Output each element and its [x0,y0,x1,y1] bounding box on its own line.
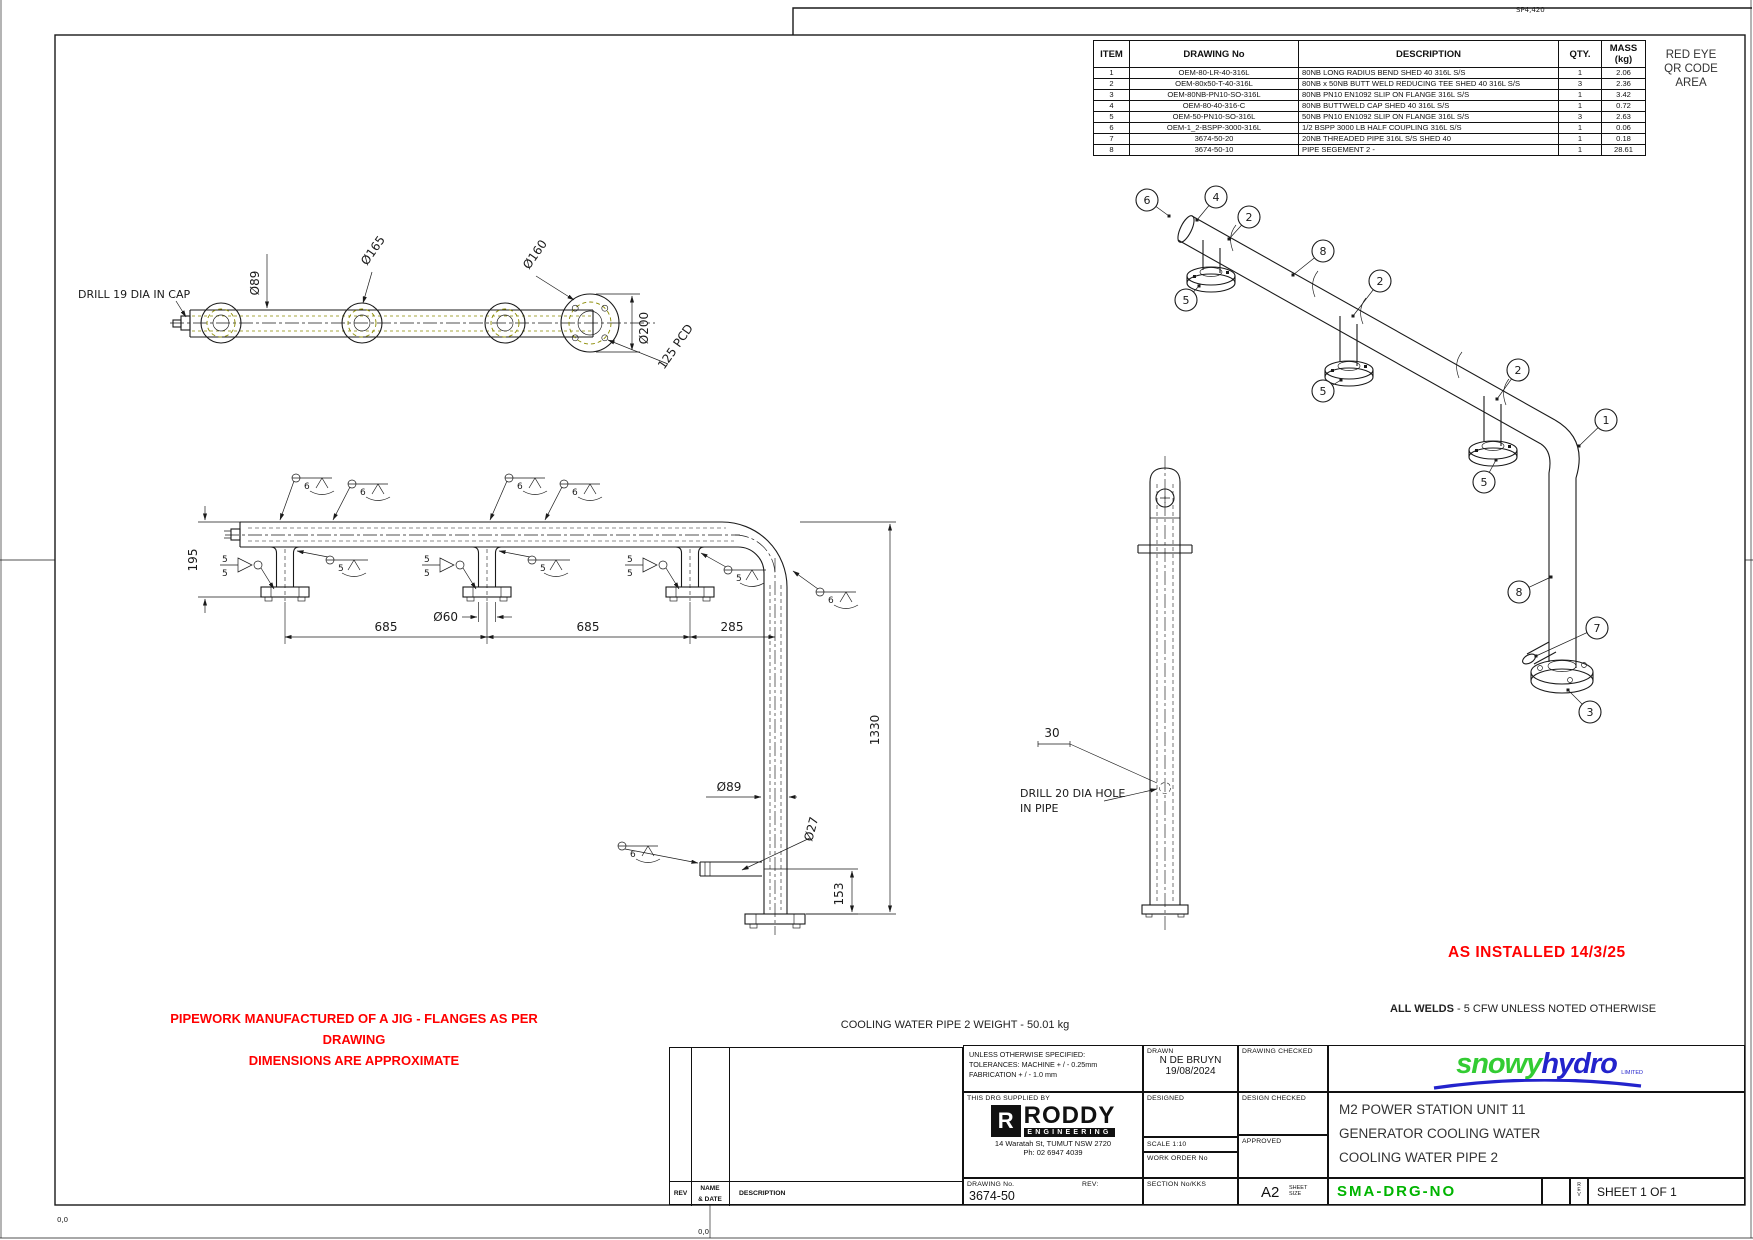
tee-stub-3 [666,547,714,601]
bom-header-description: DESCRIPTION [1299,41,1559,68]
balloon-num: 2 [1377,275,1384,288]
table-cell: 2.63 [1602,112,1646,123]
bom-header-qty: QTY. [1559,41,1602,68]
table-cell: 3 [1094,90,1130,101]
table-cell: 3 [1559,112,1602,123]
name-date-header: NAME & DATE [691,1181,729,1206]
sheet-of-cell: SHEET 1 OF 1 [1588,1178,1745,1205]
section-cell: SECTION No/KKS [1143,1178,1238,1205]
sheet-size-cell: A2 SHEET SIZE [1238,1178,1328,1205]
qr-area-line2: QR CODE [1636,62,1746,76]
weld-num: 6 [630,850,636,860]
note-jig-line1: PIPEWORK MANUFACTURED OF A JIG - FLANGES… [148,1008,560,1050]
view-side-elevation: 30 DRILL 20 DIA HOLE IN PIPE [1020,456,1192,930]
tolerance-note: UNLESS OTHERWISE SPECIFIED: TOLERANCES: … [963,1045,1143,1092]
title-line2: GENERATOR COOLING WATER [1339,1122,1744,1146]
revision-table: REV NAME & DATE DESCRIPTION [669,1047,963,1205]
table-cell: OEM-50-PN10-SO-316L [1130,112,1299,123]
table-cell: 7 [1094,134,1130,145]
supplier-cell: THIS DRG SUPPLIED BY R RODDY ENGINEERING… [963,1092,1143,1178]
table-cell: 80NB LONG RADIUS BEND SHED 40 316L S/S [1299,68,1559,79]
sma-drg-no-cell: SMA-DRG-NO [1328,1178,1542,1205]
table-cell: 1 [1559,68,1602,79]
balloon-num: 5 [1481,476,1488,489]
dim-1330: 1330 [868,715,882,746]
table-row: 3OEM-80NB-PN10-SO-316L80NB PN10 EN1092 S… [1094,90,1646,101]
weld-num: 5 [627,569,633,579]
approved-cell: APPROVED [1238,1135,1328,1178]
roddy-name: RODDY [1024,1105,1116,1127]
hydro-text: hydro [1541,1048,1617,1080]
drawn-cell: DRAWN N DE BRUYN 19/08/2024 [1143,1045,1238,1092]
rev-vertical-label: R E V [1570,1178,1588,1205]
roddy-address-line1: 14 Waratah St, TUMUT NSW 2720 [964,1139,1142,1148]
description-header: DESCRIPTION [729,1181,964,1206]
sheet-size-l2: SIZE [1289,1191,1307,1197]
drawn-name: N DE BRUYN [1144,1055,1237,1066]
weld-num: 5 [627,555,633,565]
dim-30: 30 [1044,726,1059,740]
table-cell: 3674-50-20 [1130,134,1299,145]
note-jig: PIPEWORK MANUFACTURED OF A JIG - FLANGES… [148,1008,560,1071]
dim-d89-top: Ø89 [248,271,262,296]
drawing-number: 3674-50 [969,1189,1015,1203]
view-top-pipe-plan: DRILL 19 DIA IN CAP Ø89 Ø165 Ø160 Ø200 1… [78,233,696,372]
qr-code-area: RED EYE QR CODE AREA [1636,48,1746,90]
tolerance-line2: TOLERANCES: MACHINE + / - 0.25mm [969,1060,1142,1070]
drawing-sheet: SP4,420 0,0 0,0 DRILL 19 DIA IN CAP Ø89 … [0,0,1753,1240]
rev-header: REV [670,1181,691,1206]
weld-num: 6 [304,482,310,492]
table-cell: 20NB THREADED PIPE 316L S/S SHED 40 [1299,134,1559,145]
table-cell: 28.61 [1602,145,1646,156]
table-cell: 6 [1094,123,1130,134]
design-checked-label: DESIGN CHECKED [1239,1093,1327,1102]
dim-d200: Ø200 [637,312,651,344]
table-row: 5OEM-50-PN10-SO-316L50NB PN10 EN1092 SLI… [1094,112,1646,123]
balloon-num: 3 [1587,706,1594,719]
scale-cell: SCALE 1:10 [1143,1137,1238,1152]
table-cell: PIPE SEGEMENT 2 - [1299,145,1559,156]
weld-num: 6 [517,482,523,492]
dim-d160: Ø160 [520,237,550,272]
work-order-cell: WORK ORDER No [1143,1152,1238,1178]
rev-v3: V [1571,1193,1587,1198]
roddy-address: 14 Waratah St, TUMUT NSW 2720 Ph: 02 694… [964,1139,1142,1157]
table-cell: 80NB x 50NB BUTT WELD REDUCING TEE SHED … [1299,79,1559,90]
table-cell: 3 [1559,79,1602,90]
label-drill19: DRILL 19 DIA IN CAP [78,288,191,301]
sheet-of-text: SHEET 1 OF 1 [1597,1185,1677,1199]
weld-flag-6-group: 6 6 6 6 6 6 [280,474,858,863]
table-cell: 0.18 [1602,134,1646,145]
roddy-engineering: ENGINEERING [1024,1128,1116,1137]
title-line3: COOLING WATER PIPE 2 [1339,1146,1744,1170]
dim-685b: 685 [577,620,600,634]
weld-num: 6 [572,488,578,498]
dim-685a: 685 [375,620,398,634]
dim-285: 285 [721,620,744,634]
sheet-size-value: A2 [1261,1184,1279,1201]
bom-header-item: ITEM [1094,41,1130,68]
drawing-no-cell: DRAWING No. REV: 3674-50 [963,1178,1143,1205]
roddy-r-icon: R [991,1105,1021,1137]
qr-area-line1: RED EYE [1636,48,1746,62]
weld-num: 6 [360,488,366,498]
balloon-num: 8 [1516,586,1523,599]
snowy-swoosh-icon [1329,1079,1746,1091]
table-cell: 0.72 [1602,101,1646,112]
balloon-num: 4 [1213,191,1220,204]
dim-153: 153 [832,883,846,906]
table-cell: 80NB BUTTWELD CAP SHED 40 316L S/S [1299,101,1559,112]
view-isometric: 6 4 2 8 2 5 5 2 5 1 8 7 3 [1136,186,1617,723]
rev-label: REV: [1079,1179,1098,1188]
sheet-size-label: SHEET SIZE [1289,1185,1307,1197]
qr-area-line3: AREA [1636,76,1746,90]
table-cell: 50NB PN10 EN1092 SLIP ON FLANGE 316L S/S [1299,112,1559,123]
note-all-welds-bold: ALL WELDS [1390,1003,1454,1015]
table-row: 73674-50-2020NB THREADED PIPE 316L S/S S… [1094,134,1646,145]
note-jig-line2: DIMENSIONS ARE APPROXIMATE [148,1050,560,1071]
table-cell: 80NB PN10 EN1092 SLIP ON FLANGE 316L S/S [1299,90,1559,101]
tolerance-line1: UNLESS OTHERWISE SPECIFIED: [969,1050,1142,1060]
section-label: SECTION No/KKS [1144,1179,1237,1188]
table-row: 2OEM-80x50-T-40-316L80NB x 50NB BUTT WEL… [1094,79,1646,90]
balloon-num: 2 [1515,364,1522,377]
title-block: UNLESS OTHERWISE SPECIFIED: TOLERANCES: … [963,1045,1745,1205]
weld-num: 5 [424,555,430,565]
table-row: 6OEM-1_2-BSPP-3000-316L1/2 BSPP 3000 LB … [1094,123,1646,134]
tolerance-line3: FABRICATION + / - 1.0 mm [969,1070,1142,1080]
approved-label: APPROVED [1239,1136,1327,1145]
table-cell: 4 [1094,101,1130,112]
table-row: 1OEM-80-LR-40-316L80NB LONG RADIUS BEND … [1094,68,1646,79]
dim-pcd: 125 PCD [655,321,696,371]
weld-num: 5 [540,564,546,574]
note-all-welds: ALL WELDS - 5 CFW UNLESS NOTED OTHERWISE [1390,1003,1656,1015]
designed-cell: DESIGNED [1143,1092,1238,1137]
drawn-label: DRAWN [1144,1046,1237,1055]
origin-mark-bottom: 0,0 [698,1228,709,1236]
weld-num: 5 [736,574,742,584]
project-title-cell: M2 POWER STATION UNIT 11 GENERATOR COOLI… [1328,1092,1745,1178]
table-cell: OEM-1_2-BSPP-3000-316L [1130,123,1299,134]
rev-box-empty [1542,1178,1570,1205]
drawing-checked-cell: DRAWING CHECKED [1238,1045,1328,1092]
drawing-checked-label: DRAWING CHECKED [1239,1046,1327,1055]
table-cell: 1 [1559,123,1602,134]
balloon-num: 8 [1320,245,1327,258]
weld-num: 5 [338,564,344,574]
table-cell: 3.42 [1602,90,1646,101]
table-cell: OEM-80-LR-40-316L [1130,68,1299,79]
bom-table: ITEM DRAWING No DESCRIPTION QTY. MASS (k… [1093,40,1630,156]
name-header-line2: & DATE [691,1194,729,1205]
weld-num: 5 [424,569,430,579]
table-cell: 1 [1559,90,1602,101]
name-header-line1: NAME [691,1183,729,1194]
note-all-welds-rest: - 5 CFW UNLESS NOTED OTHERWISE [1454,1003,1656,1015]
table-cell: 1 [1559,134,1602,145]
table-row: 4OEM-80-40-316-C80NB BUTTWELD CAP SHED 4… [1094,101,1646,112]
table-cell: 1/2 BSPP 3000 LB HALF COUPLING 316L S/S [1299,123,1559,134]
dim-d89-front: Ø89 [717,780,742,794]
table-cell: 8 [1094,145,1130,156]
table-cell: OEM-80x50-T-40-316L [1130,79,1299,90]
table-cell: 0.06 [1602,123,1646,134]
table-cell: 1 [1559,101,1602,112]
label-drill20-2: IN PIPE [1020,802,1058,815]
balloon-num: 6 [1144,194,1151,207]
bom-header-drawing-no: DRAWING No [1130,41,1299,68]
table-cell: 2 [1094,79,1130,90]
table-cell: OEM-80NB-PN10-SO-316L [1130,90,1299,101]
company-logo-cell: snowyhydro LIMITED [1328,1045,1745,1092]
title-line1: M2 POWER STATION UNIT 11 [1339,1098,1744,1122]
tee-stub-1 [261,547,309,601]
balloon-num: 7 [1594,622,1601,635]
weld-num: 6 [828,596,834,606]
view-front-elevation: 195 685 685 285 Ø60 Ø89 1330 Ø27 153 [186,474,896,935]
bom-rows: 1OEM-80-LR-40-316L80NB LONG RADIUS BEND … [1094,68,1646,156]
label-drill20-1: DRILL 20 DIA HOLE [1020,787,1125,800]
dim-d165: Ø165 [358,233,388,268]
limited-text: LIMITED [1621,1070,1649,1076]
roddy-address-line2: Ph: 02 6947 4039 [964,1148,1142,1157]
dim-d27: Ø27 [801,815,821,842]
sma-drg-no: SMA-DRG-NO [1337,1183,1456,1200]
weld-flag-5-group: 5 5 5 [297,551,766,587]
origin-mark-left: 0,0 [57,1216,68,1224]
drawn-date: 19/08/2024 [1144,1066,1237,1077]
balloon-num: 5 [1183,294,1190,307]
plot-mark: SP4,420 [1516,6,1545,14]
balloon-num: 2 [1246,211,1253,224]
drawing-no-label: DRAWING No. [964,1179,1014,1188]
roddy-logo: R RODDY ENGINEERING [964,1105,1142,1137]
dim-d60: Ø60 [433,610,458,624]
table-cell: OEM-80-40-316-C [1130,101,1299,112]
snowyhydro-logo: snowyhydro [1329,1048,1744,1081]
table-cell: 5 [1094,112,1130,123]
weld-55-group: 5 5 5 5 5 5 [220,555,679,589]
balloon-num: 5 [1320,385,1327,398]
table-cell: 3674-50-10 [1130,145,1299,156]
note-as-installed: AS INSTALLED 14/3/25 [1448,944,1626,962]
table-cell: 1 [1094,68,1130,79]
dim-195: 195 [186,549,200,572]
design-checked-cell: DESIGN CHECKED [1238,1092,1328,1135]
tee-stub-2 [463,547,511,601]
weld-num: 5 [222,555,228,565]
snowy-text: snowy [1456,1048,1541,1080]
supplied-by-label: THIS DRG SUPPLIED BY [964,1093,1142,1102]
designed-label: DESIGNED [1144,1093,1237,1102]
work-order-label: WORK ORDER No [1144,1153,1237,1162]
scale-label: SCALE 1:10 [1144,1138,1237,1148]
weld-num: 5 [222,569,228,579]
balloon-num: 1 [1603,414,1610,427]
table-row: 83674-50-10PIPE SEGEMENT 2 -128.61 [1094,145,1646,156]
table-cell: 1 [1559,145,1602,156]
note-weight: COOLING WATER PIPE 2 WEIGHT - 50.01 kg [770,1019,1140,1031]
